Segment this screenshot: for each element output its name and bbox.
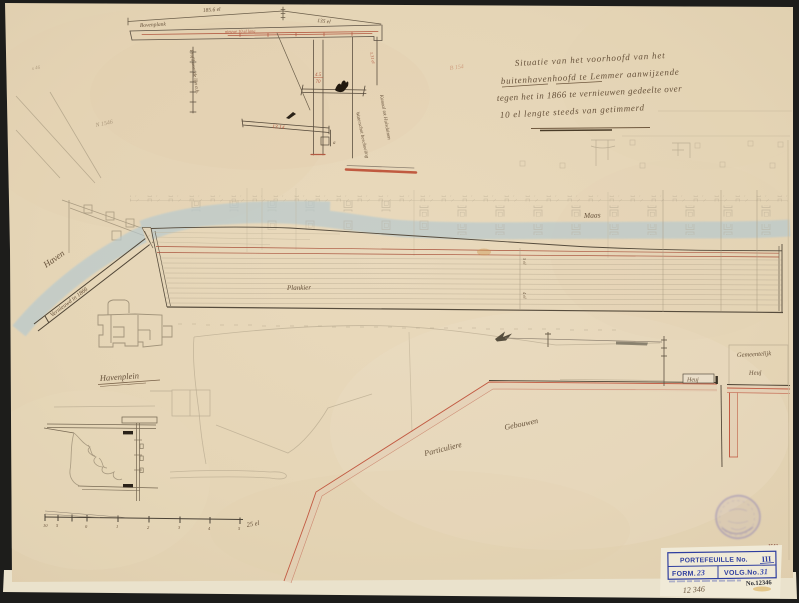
svg-text:1: 1 xyxy=(116,524,118,529)
svg-text:Maas: Maas xyxy=(583,210,601,220)
svg-text:31: 31 xyxy=(759,567,768,576)
svg-text:70: 70 xyxy=(316,80,322,85)
svg-text:PORTEFEUILLE No.: PORTEFEUILLE No. xyxy=(680,557,748,565)
svg-text:nieuwe 10 el lang: nieuwe 10 el lang xyxy=(225,28,256,34)
svg-text:VOLG.No.: VOLG.No. xyxy=(724,570,760,577)
svg-text:4 el: 4 el xyxy=(522,292,527,300)
svg-text:12 346: 12 346 xyxy=(683,584,706,595)
svg-text:Heuj: Heuj xyxy=(686,378,699,384)
svg-text:5 el: 5 el xyxy=(522,258,527,266)
svg-text:FORM.: FORM. xyxy=(672,571,696,578)
svg-text:10: 10 xyxy=(43,523,48,528)
svg-text:23: 23 xyxy=(696,568,705,577)
svg-text:Heuj: Heuj xyxy=(748,369,762,377)
svg-text:185.6 el: 185.6 el xyxy=(203,7,222,14)
svg-text:13.14: 13.14 xyxy=(272,123,285,131)
svg-text:Plankier: Plankier xyxy=(286,284,312,292)
svg-text:No.12346: No.12346 xyxy=(746,579,773,587)
